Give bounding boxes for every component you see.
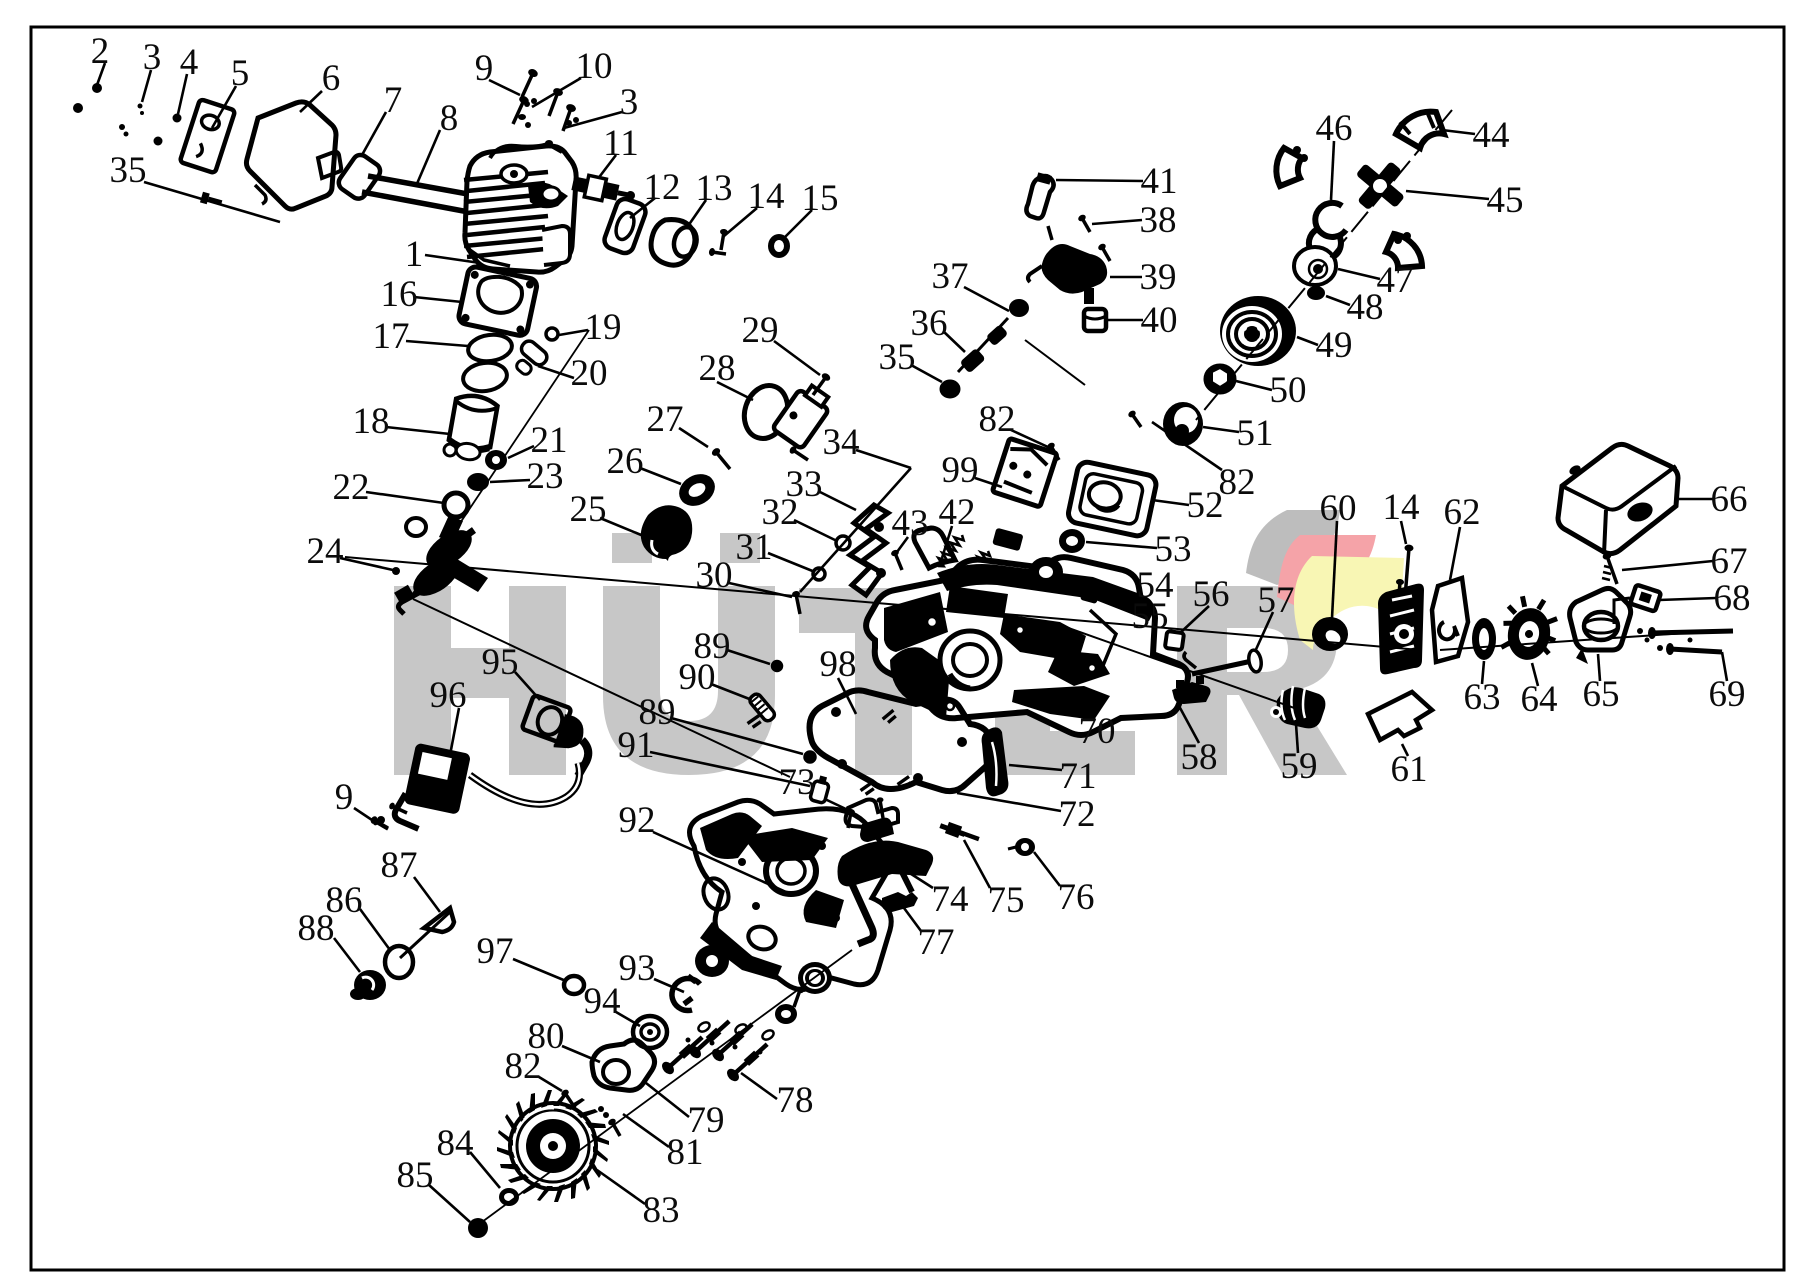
svg-text:87: 87 (381, 845, 418, 886)
svg-text:35: 35 (110, 150, 147, 191)
svg-text:48: 48 (1347, 287, 1384, 328)
svg-text:14: 14 (748, 176, 785, 217)
svg-text:82: 82 (505, 1046, 542, 1087)
svg-text:46: 46 (1316, 108, 1353, 149)
svg-text:22: 22 (333, 467, 370, 508)
svg-text:95: 95 (482, 642, 519, 683)
svg-text:20: 20 (571, 353, 608, 394)
svg-text:59: 59 (1281, 746, 1318, 787)
svg-text:57: 57 (1258, 580, 1295, 621)
svg-text:68: 68 (1714, 578, 1751, 619)
svg-text:56: 56 (1193, 574, 1230, 615)
svg-text:29: 29 (742, 310, 779, 351)
svg-text:10: 10 (576, 46, 613, 87)
svg-text:61: 61 (1391, 749, 1428, 790)
svg-text:14: 14 (1383, 487, 1420, 528)
svg-text:90: 90 (679, 657, 716, 698)
svg-text:31: 31 (736, 527, 773, 568)
svg-text:81: 81 (667, 1132, 704, 1173)
svg-text:34: 34 (823, 422, 860, 463)
svg-text:60: 60 (1320, 488, 1357, 529)
svg-text:69: 69 (1709, 674, 1746, 715)
svg-text:82: 82 (1219, 462, 1256, 503)
svg-text:53: 53 (1155, 529, 1192, 570)
svg-text:63: 63 (1464, 677, 1501, 718)
svg-text:37: 37 (932, 256, 969, 297)
svg-text:9: 9 (335, 777, 354, 818)
svg-text:92: 92 (619, 800, 656, 841)
svg-text:64: 64 (1521, 679, 1558, 720)
svg-text:5: 5 (231, 53, 250, 94)
svg-text:70: 70 (1079, 711, 1116, 752)
svg-text:91: 91 (618, 725, 655, 766)
svg-text:39: 39 (1140, 257, 1177, 298)
svg-text:3: 3 (620, 82, 639, 123)
svg-text:96: 96 (430, 675, 467, 716)
svg-text:88: 88 (298, 908, 335, 949)
svg-text:85: 85 (397, 1155, 434, 1196)
svg-text:49: 49 (1316, 325, 1353, 366)
svg-text:78: 78 (777, 1080, 814, 1121)
svg-text:24: 24 (307, 531, 344, 572)
svg-text:28: 28 (699, 348, 736, 389)
svg-text:25: 25 (570, 489, 607, 530)
svg-text:41: 41 (1141, 161, 1178, 202)
svg-text:12: 12 (644, 167, 681, 208)
svg-text:16: 16 (381, 274, 418, 315)
svg-text:83: 83 (643, 1190, 680, 1231)
svg-text:52: 52 (1187, 485, 1224, 526)
svg-text:76: 76 (1058, 877, 1095, 918)
svg-text:73: 73 (779, 762, 816, 803)
svg-text:44: 44 (1473, 115, 1510, 156)
svg-text:11: 11 (603, 123, 639, 164)
svg-text:43: 43 (892, 503, 929, 544)
svg-text:99: 99 (942, 450, 979, 491)
svg-text:66: 66 (1711, 479, 1748, 520)
svg-text:58: 58 (1181, 737, 1218, 778)
svg-text:19: 19 (585, 307, 622, 348)
svg-text:2: 2 (91, 31, 110, 72)
svg-text:40: 40 (1141, 300, 1178, 341)
svg-text:27: 27 (647, 399, 684, 440)
svg-text:15: 15 (802, 178, 839, 219)
svg-text:21: 21 (531, 420, 568, 461)
svg-text:55: 55 (1132, 596, 1169, 637)
svg-text:17: 17 (373, 316, 410, 357)
svg-text:74: 74 (932, 879, 969, 920)
svg-text:23: 23 (527, 456, 564, 497)
svg-text:42: 42 (939, 492, 976, 533)
svg-text:7: 7 (384, 80, 403, 121)
svg-text:26: 26 (607, 441, 644, 482)
svg-text:77: 77 (918, 922, 955, 963)
svg-text:50: 50 (1270, 370, 1307, 411)
svg-text:51: 51 (1237, 413, 1274, 454)
svg-text:6: 6 (322, 58, 341, 99)
svg-text:84: 84 (437, 1123, 474, 1164)
svg-text:3: 3 (143, 37, 162, 78)
svg-text:18: 18 (353, 401, 390, 442)
svg-text:8: 8 (440, 98, 459, 139)
svg-text:9: 9 (475, 48, 494, 89)
svg-text:75: 75 (988, 880, 1025, 921)
svg-text:72: 72 (1059, 794, 1096, 835)
svg-text:97: 97 (477, 931, 514, 972)
svg-text:1: 1 (405, 234, 424, 275)
svg-text:82: 82 (979, 399, 1016, 440)
svg-text:71: 71 (1060, 756, 1097, 797)
svg-text:62: 62 (1444, 492, 1481, 533)
svg-text:45: 45 (1487, 180, 1524, 221)
svg-text:98: 98 (820, 644, 857, 685)
svg-text:94: 94 (584, 981, 621, 1022)
svg-text:4: 4 (180, 42, 199, 83)
svg-text:30: 30 (696, 555, 733, 596)
svg-text:93: 93 (619, 948, 656, 989)
svg-text:65: 65 (1583, 674, 1620, 715)
svg-text:36: 36 (911, 303, 948, 344)
svg-text:38: 38 (1140, 200, 1177, 241)
svg-text:67: 67 (1711, 541, 1748, 582)
svg-text:13: 13 (696, 168, 733, 209)
